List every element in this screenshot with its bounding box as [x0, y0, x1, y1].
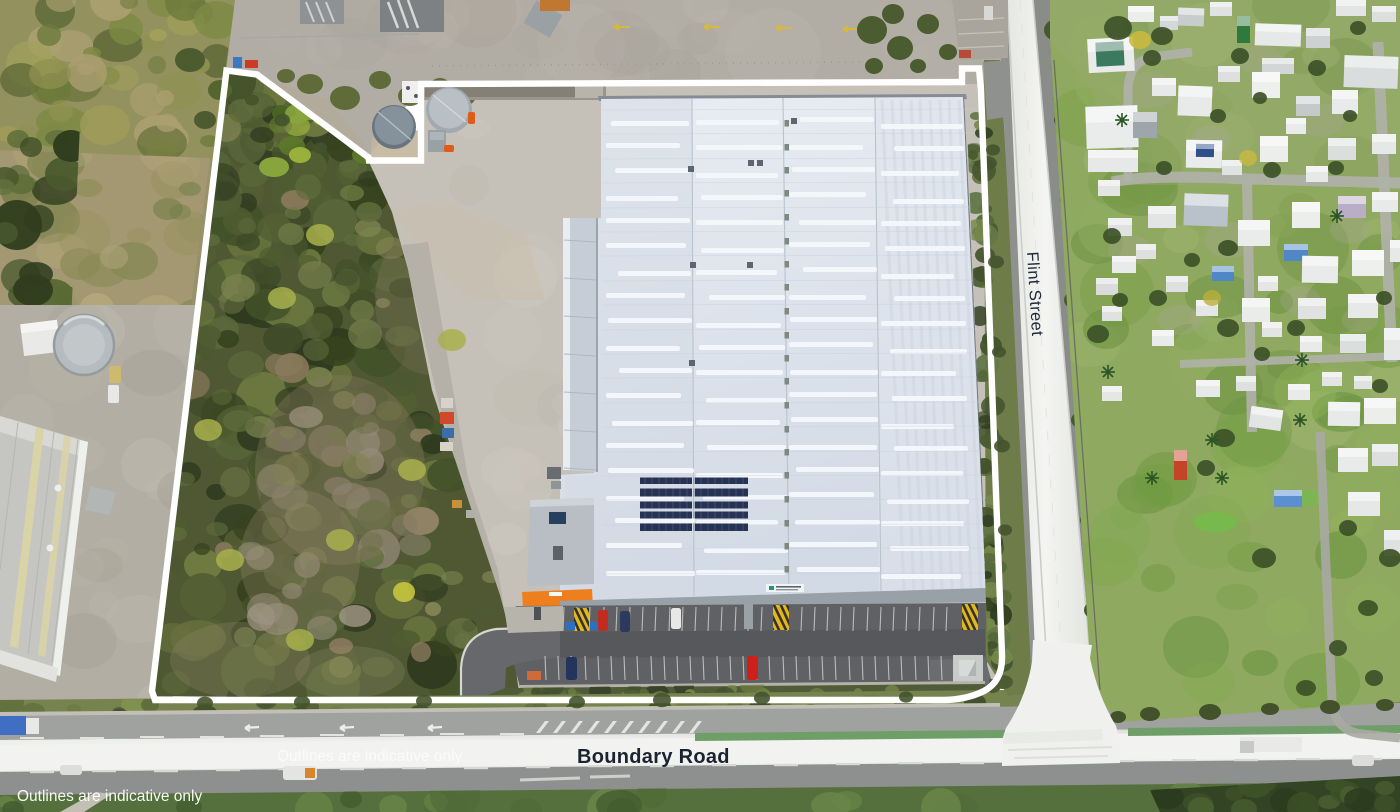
svg-text:Outlines are indicative only: Outlines are indicative only — [17, 788, 202, 805]
svg-text:Boundary Road: Boundary Road — [577, 746, 730, 768]
svg-text:Outlines are indicative only: Outlines are indicative only — [277, 748, 462, 765]
